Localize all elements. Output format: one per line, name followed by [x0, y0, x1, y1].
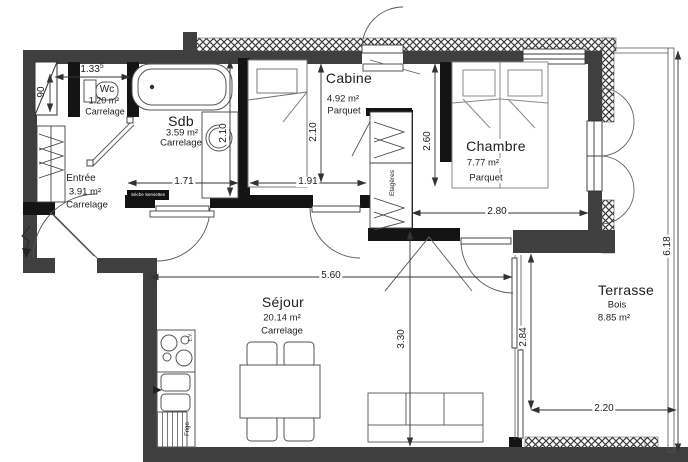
dim-sejour-depth-label: 3.30 [397, 327, 407, 350]
dim-total-depth-label: 6.18 [663, 234, 673, 257]
dim-chambre-width-label: 2.80 [485, 207, 508, 217]
dim-sdb-depth-label: 2.10 [219, 121, 229, 144]
furniture [37, 60, 548, 447]
sdb-floor: Carrelage [160, 138, 202, 148]
chair [284, 416, 314, 441]
wc-area: 1.20 m² [89, 97, 120, 106]
cabine-bed [248, 60, 307, 187]
cabine-label: Cabine [326, 71, 372, 85]
dim-shaft-label: 90 [37, 86, 47, 97]
chair [284, 342, 314, 367]
wc-floor: Carrelage [85, 108, 125, 117]
entree-floor: Carrelage [66, 200, 108, 210]
dim-wc-width-label: 1.335 [80, 63, 103, 75]
towel-dryer-label: Sèche Serviettes [129, 192, 167, 199]
chambre-area: 7.77 m² [465, 158, 501, 168]
bathtub [132, 64, 232, 110]
chair [247, 342, 277, 367]
entree-closet [37, 126, 65, 202]
radiator [150, 211, 214, 217]
table [240, 365, 320, 418]
fridge-label: Frigo [185, 422, 191, 436]
terrasse-area: 8.85 m² [598, 313, 630, 323]
cabine-floor: Parquet [327, 106, 360, 116]
chambre-floor: Parquet [467, 173, 504, 183]
chair [247, 416, 277, 441]
dim-sejour-width-label: 5.60 [319, 271, 342, 281]
terrasse-floor: Bois [608, 300, 626, 310]
shelves-label: Etagères [390, 170, 397, 196]
terrasse-label: Terrasse [598, 283, 654, 297]
dim-closet-height-label: 2.60 [423, 129, 433, 152]
bunk-symbol [385, 237, 472, 291]
chambre-bed [452, 62, 548, 188]
sink-basin [161, 394, 190, 411]
sejour-floor: Carrelage [261, 326, 303, 336]
sejour-area: 20.14 m² [263, 313, 301, 323]
cabine-area: 4.92 m² [327, 94, 359, 104]
sofa [368, 393, 483, 442]
dim-terrasse-width-label: 2.20 [592, 404, 615, 414]
chambre-label: Chambre [464, 139, 528, 153]
dining-set [240, 342, 320, 441]
dim-cabine-width-label: 1.91 [296, 177, 319, 187]
entree-area: 3.91 m² [69, 187, 101, 197]
closet-door [352, 118, 372, 156]
entree-label: Entrée [66, 174, 95, 184]
dim-cabine-depth-label: 2.10 [309, 120, 319, 143]
chambre-door [461, 238, 513, 293]
dishwasher-label: L.V. [189, 333, 194, 341]
cabine-door [310, 206, 360, 258]
dim-terrasse-depth-label: 2.84 [519, 325, 529, 348]
sink-basin [161, 374, 190, 391]
floor-plan: Sdb 3.59 m² Carrelage Wc 1.20 m² Carrela… [0, 0, 688, 462]
sejour-label: Séjour [262, 295, 304, 309]
wc-label: Wc [100, 85, 114, 95]
wc-door [87, 117, 134, 166]
fridge [157, 412, 187, 447]
dim-sdb-width-label: 1.71 [172, 177, 195, 187]
sdb-label: Sdb [168, 114, 194, 128]
